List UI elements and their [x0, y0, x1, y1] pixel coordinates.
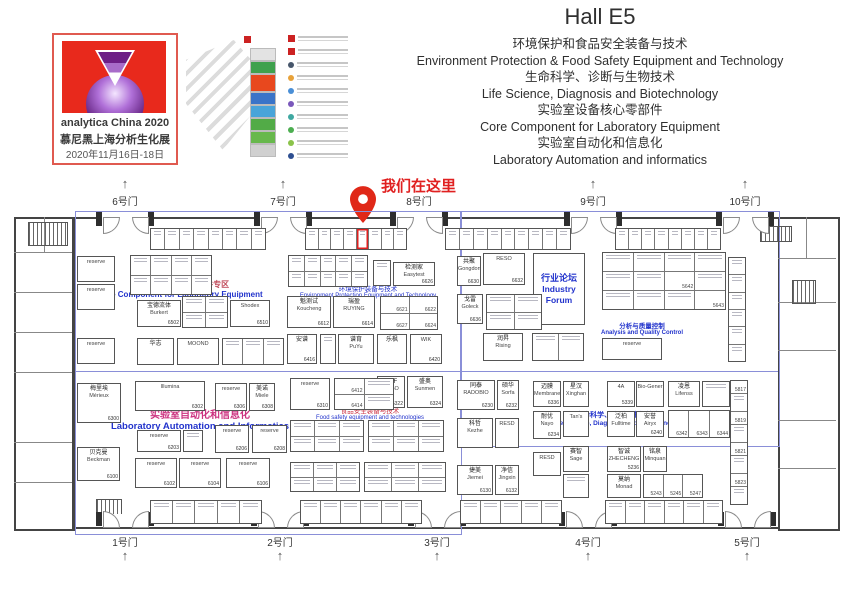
- booth-name-en: Sorfa: [498, 390, 518, 396]
- booth-cell: [515, 229, 528, 249]
- wall-booth-strip: [150, 500, 262, 524]
- booth-code: 6308: [262, 404, 273, 410]
- booth-6336: 迈膜Membrane6336: [533, 381, 561, 407]
- gate-label: 7号门: [261, 193, 305, 208]
- booth-name-en: Kezhe: [458, 428, 492, 434]
- booth-6632: RESO6632: [483, 253, 525, 285]
- booth-name-en: Beckman: [78, 457, 119, 463]
- booth-6630: 共聚Gongdong6630: [457, 256, 481, 286]
- structure-line: [14, 482, 72, 483]
- booth-name-cn: 耐优: [534, 414, 560, 421]
- gate-label: 5号门: [725, 534, 769, 549]
- booth-name-en: WIK: [411, 337, 441, 343]
- booth-name-en: Goleck: [458, 304, 482, 310]
- booth-code: 6510: [257, 320, 268, 326]
- booth-6510: Shodex6510: [230, 300, 270, 327]
- gate-arrow-icon: ↑: [581, 548, 595, 563]
- gate-arrow-icon: ↑: [430, 548, 444, 563]
- booth-cell: [515, 295, 542, 312]
- booth-cell: [291, 421, 314, 436]
- booth-6104: reserve6104: [179, 458, 221, 488]
- booth-5339: 4A5339: [607, 381, 635, 407]
- booth-name-en: Lifenss: [669, 391, 699, 397]
- booth-cluster: 5817581958215823: [730, 380, 748, 505]
- booth-name-en: RESD: [496, 421, 518, 427]
- booth-cell: [151, 276, 170, 295]
- structure-line: [778, 468, 836, 469]
- booth-cell: [183, 297, 205, 312]
- booth-6300: 梅里埃Mérieux6300: [77, 383, 121, 423]
- booth-name-en: RADOBIO: [458, 390, 494, 396]
- booth-cell: [394, 229, 406, 249]
- booth-6240: 安誉Airyx6240: [636, 411, 664, 437]
- booth: reserve: [77, 256, 115, 282]
- booth-6626: 检测家Easytest6626: [393, 262, 435, 286]
- booth-cell: [264, 339, 283, 364]
- booth-name-en: Easytest: [394, 272, 434, 278]
- booth-code: 6324: [430, 401, 441, 407]
- booth-cell: [209, 229, 222, 249]
- booth-name-cn: 捷美: [458, 468, 492, 475]
- booth-code: 6132: [506, 488, 517, 494]
- booth-cell: [206, 297, 228, 312]
- booth-cell: [487, 313, 514, 330]
- booth-name-en: reserve: [180, 461, 220, 467]
- booth: Bio-Gener: [636, 381, 664, 407]
- booth-cell: [336, 272, 351, 287]
- booth-name-en: Shodex: [231, 303, 269, 309]
- booth-cell: [502, 229, 515, 249]
- booth-name-cn: 润昇: [484, 336, 522, 343]
- booth-name-cn: 美诺: [250, 386, 274, 393]
- booth-cell: [695, 229, 707, 249]
- booth-cell: [419, 437, 443, 452]
- booth-cell: [695, 253, 725, 271]
- booth-cluster: [290, 420, 364, 452]
- wall-pillar: [96, 212, 102, 226]
- booth-cell: [684, 501, 703, 523]
- booth-6206: reserve6206: [215, 425, 249, 453]
- booth-cell: [626, 501, 645, 523]
- booth-cell: [419, 421, 443, 436]
- booth: 泛柏Fulltime: [607, 411, 635, 437]
- booth-code: 6234: [548, 432, 559, 438]
- booth-cell: [729, 293, 745, 309]
- booth-name-cn: 共聚: [458, 259, 480, 266]
- booth-name-cn: 梅里埃: [78, 386, 120, 393]
- booth-cluster: 524352455247: [643, 474, 703, 498]
- booth-cluster: 64126414: [334, 378, 394, 410]
- booth-cell: [340, 437, 363, 452]
- booth-name-cn: 乐枫: [378, 337, 406, 344]
- wall-booth-strip: [445, 228, 571, 250]
- booth-name-en: Burkert: [138, 310, 180, 316]
- booth: Tan's: [563, 411, 589, 437]
- booth-cell: [223, 339, 242, 364]
- booth-name-en: reserve: [291, 381, 329, 387]
- booth-cluster: [364, 462, 446, 492]
- booth: 科哲Kezhe: [457, 418, 493, 448]
- booth-cell: 6342: [669, 411, 688, 437]
- booth-name-en: Bio-Gener: [637, 384, 663, 390]
- booth-cluster: [486, 294, 542, 330]
- booth-name-en: reserve: [216, 428, 248, 434]
- booth-cell: [382, 501, 401, 523]
- gate-arrow-icon: ↑: [118, 548, 132, 563]
- booth-code: 6336: [548, 400, 559, 406]
- booth-cell: [731, 394, 747, 412]
- wall-pillar: [254, 212, 260, 226]
- booth: 铭泉Minquan: [643, 446, 667, 472]
- floor-plan: 我们在这里 6号门↑7号门↑8号门9号门↑10号门↑1号门↑2号门↑3号门↑4号…: [0, 0, 844, 608]
- booth-name-cn: 科哲: [458, 421, 492, 428]
- booth-cell: [365, 463, 391, 477]
- booth-name-en: reserve: [136, 461, 176, 467]
- booth-cell: [665, 253, 695, 271]
- booth-cell: [481, 501, 500, 523]
- booth-cluster: 634263436344: [668, 410, 730, 438]
- stairs-icon: [792, 280, 816, 304]
- booth-cell: [665, 291, 695, 309]
- booth-cell: [629, 229, 641, 249]
- booth-cell: [331, 229, 343, 249]
- booth-cell: 6412: [335, 379, 364, 394]
- booth-cell: [634, 272, 664, 290]
- booth-code: 6300: [108, 416, 119, 422]
- booth-name-en: Gongdong: [458, 266, 480, 272]
- booth-name-cn: 华志: [138, 341, 173, 348]
- booth-cell: [474, 229, 487, 249]
- booth: 谱育PuYu: [338, 334, 374, 364]
- booth-cell: 5823: [731, 474, 747, 486]
- booth-cell: [131, 276, 150, 295]
- booth-cell: [192, 256, 211, 275]
- booth-cell: [344, 229, 356, 249]
- booth-code: 6636: [470, 317, 481, 323]
- booth-name-cn: 贝克曼: [78, 450, 119, 457]
- booth-name-cn: 泛柏: [608, 414, 634, 421]
- booth-name-cn: 同泰: [458, 383, 494, 390]
- booth-name-en: Koucheng: [288, 306, 330, 312]
- booth-6502: 宝德流体Burkert6502: [137, 300, 181, 327]
- booth-name-en: Rising: [484, 343, 522, 349]
- booth-cell: [731, 456, 747, 474]
- booth-6614: 瑞盈RUYING6614: [333, 296, 375, 328]
- booth-cell: 6621: [381, 297, 409, 313]
- booth-cell: [729, 258, 745, 274]
- booth-name-cn: 谱育: [339, 337, 373, 344]
- booth: reserve: [77, 338, 115, 364]
- booth-cell: [172, 276, 191, 295]
- booth-cell: [306, 229, 318, 249]
- booth-name-en: reserve: [253, 428, 286, 434]
- booth-name-en: Miele: [250, 393, 274, 399]
- booth-cell: [184, 431, 202, 451]
- booth-cell: [192, 276, 211, 295]
- booth-cluster: [288, 255, 368, 287]
- booth-code: 6106: [257, 481, 268, 487]
- booth-cell: [291, 478, 313, 492]
- booth-code: 6632: [512, 278, 523, 284]
- booth-cell: [321, 256, 336, 271]
- booth: 星汉Xinghan: [563, 381, 589, 407]
- booth-name-en: reserve: [78, 341, 114, 347]
- booth-cell: [488, 229, 501, 249]
- booth-name-en: MOOND: [178, 341, 218, 347]
- structure-line: [778, 258, 836, 259]
- booth-name-en: Mérieux: [78, 393, 120, 399]
- booth: 莫纳Monad: [607, 474, 641, 498]
- booth-cell: [642, 229, 654, 249]
- booth-cell: [365, 478, 391, 492]
- booth-code: 6203: [168, 445, 179, 451]
- booth-6208: reserve6208: [252, 425, 287, 453]
- booth-name-en: Monad: [608, 484, 640, 490]
- booth-cell: [252, 229, 265, 249]
- wall-booth-strip: [460, 500, 562, 524]
- booth-cell: [289, 272, 304, 287]
- booth-6306: reserve6306: [215, 383, 247, 411]
- booth-cluster: [373, 260, 391, 286]
- booth-code: 6310: [317, 403, 328, 409]
- gate-label: 4号门: [566, 534, 610, 549]
- booth-cell: [291, 437, 314, 452]
- booth-name-en: Illumina: [136, 384, 204, 390]
- booth-cell: [183, 313, 205, 328]
- booth-cell: [731, 425, 747, 443]
- gate-arrow-icon: ↑: [738, 176, 752, 191]
- booth-cluster: [532, 333, 584, 361]
- booth-name-en: Jiemei: [458, 475, 492, 481]
- booth-cell: 5642: [665, 272, 695, 290]
- booth-cell: [365, 395, 394, 410]
- booth-cell: [151, 501, 172, 523]
- booth-name-cn: 硕华: [498, 383, 518, 390]
- booth-cell: [731, 487, 747, 505]
- booth-name-cn: 智诚: [608, 449, 640, 456]
- booth-cell: [337, 478, 359, 492]
- booth-6100: 贝克曼Beckman6100: [77, 447, 120, 481]
- booth-cell: [682, 229, 694, 249]
- booth-name-en: RUYING: [334, 306, 374, 312]
- structure-line: [778, 350, 836, 351]
- booth-cell: [194, 229, 207, 249]
- booth-cell: [487, 295, 514, 312]
- booth: reserve: [77, 284, 115, 310]
- booth-cell: 5821: [731, 443, 747, 455]
- gate-label: 3号门: [415, 534, 459, 549]
- booth-code: 6208: [274, 446, 285, 452]
- booth-name-en: Fulltime: [608, 421, 634, 427]
- wall-booth-strip: [150, 228, 266, 250]
- gate-label: 2号门: [258, 534, 302, 549]
- booth-6324: 盛奥Sunmen6324: [407, 376, 443, 408]
- gate-label: 8号门: [397, 193, 441, 208]
- booth-cell: [533, 334, 558, 360]
- booth-cell: [394, 437, 418, 452]
- booth-name-en: Airyx: [637, 421, 663, 427]
- booth-cell: [341, 501, 360, 523]
- booth-cell: [695, 272, 725, 290]
- booth-cell: [314, 463, 336, 477]
- booth-name-en: Sage: [564, 456, 588, 462]
- booth-code: 5236: [628, 465, 639, 471]
- booth-name-en: 4A: [608, 384, 634, 390]
- booth-name-en: Nayo: [534, 421, 560, 427]
- booth-cell: 6414: [335, 395, 364, 410]
- zone-label-en: Analysis and Quality Control: [482, 330, 802, 336]
- booth-cell: [392, 478, 418, 492]
- booth-name-en: ZHECHENG: [608, 456, 640, 462]
- booth-cell: [195, 501, 216, 523]
- booth: 润昇Rising: [483, 333, 523, 361]
- booth-cell: [402, 501, 421, 523]
- booth-code: 6630: [468, 279, 479, 285]
- booth-cell: 6627: [381, 314, 409, 330]
- stairs-icon: [28, 222, 68, 246]
- booth-cell: [729, 327, 745, 343]
- gate-label: 6号门: [103, 193, 147, 208]
- gate-arrow-icon: ↑: [740, 548, 754, 563]
- booth-cell: [352, 272, 367, 287]
- structure-line: [14, 372, 72, 373]
- booth: MOOND: [177, 338, 219, 365]
- booth-cell: [314, 478, 336, 492]
- structure-line: [778, 420, 836, 421]
- booth-cell: [729, 345, 745, 361]
- booth-name-en: Jingxin: [496, 475, 518, 481]
- booth-cell: [669, 229, 681, 249]
- booth-cell: [352, 256, 367, 271]
- booth-code: 6240: [651, 430, 662, 436]
- booth-cell: 6344: [710, 411, 729, 437]
- wall-booth-strip: [305, 228, 407, 250]
- booth-5236: 智诚ZHECHENG5236: [607, 446, 641, 472]
- booth-6132: 净信Jingxin6132: [495, 465, 519, 495]
- booth-code: 6302: [192, 404, 203, 410]
- booth-cell: [446, 229, 459, 249]
- booth-cluster: [563, 474, 589, 498]
- booth-code: 6230: [482, 403, 493, 409]
- booth-6102: reserve6102: [135, 458, 177, 488]
- booth: 乐枫: [377, 334, 407, 364]
- booth-code: 6626: [422, 279, 433, 285]
- gate-label: 1号门: [103, 534, 147, 549]
- booth-cell: [319, 229, 331, 249]
- wall-pillar: [390, 212, 396, 226]
- booth-cell: [218, 501, 239, 523]
- booth-cell: [460, 229, 473, 249]
- booth-6420: WIK6420: [410, 334, 442, 364]
- booth-cell: [645, 501, 664, 523]
- booth-cell: [634, 291, 664, 309]
- booth-cell: [365, 379, 394, 394]
- booth: reserve: [602, 338, 662, 360]
- booth-code: 6306: [234, 404, 245, 410]
- booth-cell: 6343: [689, 411, 708, 437]
- booth-cell: [305, 256, 320, 271]
- booth-cluster: [702, 381, 730, 407]
- booth-cell: [301, 501, 320, 523]
- booth-cell: [708, 229, 720, 249]
- booth-cell: [291, 463, 313, 477]
- gate-arrow-icon: ↑: [586, 176, 600, 191]
- booth-name-cn: 赛智: [564, 449, 588, 456]
- booth-name-en: RESD: [534, 455, 560, 461]
- booth-cell: 5643: [695, 291, 725, 309]
- booth-name-en: Xinghan: [564, 391, 588, 397]
- booth-cell: [704, 501, 723, 523]
- booth-cell: [206, 313, 228, 328]
- booth-name-cn: 宝德流体: [138, 303, 180, 310]
- booth-cell: [180, 229, 193, 249]
- service-block-left: [14, 217, 76, 531]
- zone-divider-line: [75, 371, 778, 372]
- booth-6234: 耐优Nayo6234: [533, 411, 561, 439]
- booth: RESD: [495, 418, 519, 448]
- structure-line: [14, 332, 72, 333]
- booth: RESD: [533, 452, 561, 476]
- booth-cluster: [182, 296, 228, 328]
- booth-cell: [305, 272, 320, 287]
- booth-cell: [173, 501, 194, 523]
- booth-name-cn: 净信: [496, 468, 518, 475]
- booth-cell: [603, 272, 633, 290]
- booth-code: 6102: [164, 481, 175, 487]
- booth-cluster: 6621662266276624: [380, 296, 438, 330]
- booth-cluster: [290, 462, 360, 492]
- booth-code: 6612: [318, 321, 329, 327]
- booth-cell: [361, 501, 380, 523]
- booth-name-cn: 铭泉: [644, 449, 666, 456]
- structure-line: [14, 252, 72, 253]
- booth-cluster: [183, 430, 203, 452]
- booth-cell: [223, 229, 236, 249]
- booth-cell: [172, 256, 191, 275]
- booth-cluster: [368, 420, 444, 452]
- booth-name-cn: 凌恩: [669, 384, 699, 391]
- booth-6302: Illumina6302: [135, 381, 205, 411]
- booth-code: 6206: [236, 446, 247, 452]
- booth-6203: reserve6203: [137, 430, 181, 452]
- booth-cell: [603, 253, 633, 271]
- booth-cell: 5245: [664, 475, 683, 497]
- booth-cell: [321, 335, 335, 363]
- booth-name-en: reserve: [216, 386, 246, 392]
- booth-name-cn: 盛奥: [408, 379, 442, 386]
- booth-name-en: Minquan: [644, 456, 666, 462]
- booth: 凌恩Lifenss: [668, 381, 700, 407]
- booth-6416: 安谱6416: [287, 334, 317, 364]
- booth-cell: [729, 275, 745, 291]
- booth-cell: [374, 261, 390, 285]
- booth-cell: [515, 313, 542, 330]
- booth-code: 6232: [506, 403, 517, 409]
- booth-cell: [529, 229, 542, 249]
- booth-cell: [394, 421, 418, 436]
- booth-cell: [315, 437, 338, 452]
- booth-code: 6614: [362, 321, 373, 327]
- booth-cluster: [130, 255, 212, 295]
- booth-code: 6104: [208, 481, 219, 487]
- booth-cluster: [320, 334, 336, 364]
- booth-cell: [369, 229, 381, 249]
- booth-cell: [240, 501, 261, 523]
- booth-name-cn: 安谱: [288, 337, 316, 344]
- booth-cell: [655, 229, 667, 249]
- booth-cell: 5817: [731, 381, 747, 393]
- booth-name-cn: 莫纳: [608, 477, 640, 484]
